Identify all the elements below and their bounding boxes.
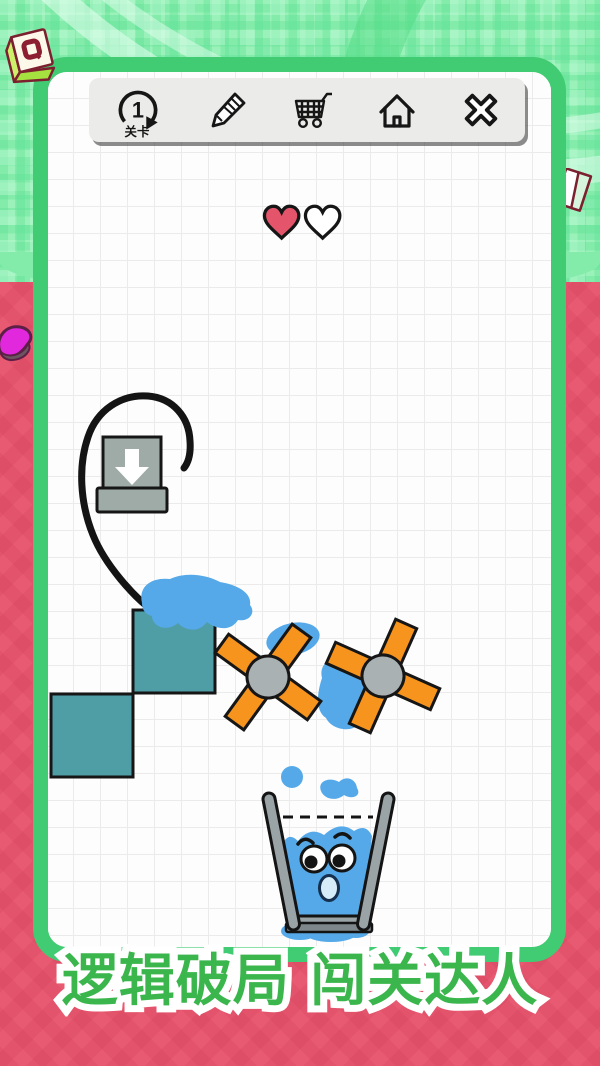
home-icon bbox=[373, 86, 421, 134]
teal-block bbox=[51, 694, 133, 777]
level-number: 1 bbox=[132, 97, 144, 122]
home-button[interactable] bbox=[369, 82, 425, 138]
shop-cart-button[interactable] bbox=[284, 82, 340, 138]
level-restart-button[interactable]: 1 关卡 bbox=[105, 82, 171, 138]
game-scene bbox=[48, 72, 551, 947]
dice-cube-decoration bbox=[2, 22, 68, 90]
banner: 逻辑破局 闯关达人 逻辑破局 闯关达人 bbox=[0, 936, 600, 1026]
water-drop bbox=[281, 766, 303, 788]
game-frame bbox=[33, 57, 566, 962]
level-restart-icon: 1 关卡 bbox=[111, 81, 165, 139]
close-button[interactable] bbox=[453, 82, 509, 138]
mouth bbox=[320, 876, 339, 901]
glass-character bbox=[269, 799, 388, 942]
level-label: 关卡 bbox=[125, 124, 150, 139]
banner-text: 逻辑破局 闯关达人 bbox=[62, 936, 539, 1017]
pencil-button[interactable] bbox=[200, 82, 256, 138]
lives-indicator bbox=[264, 206, 339, 238]
water-dispenser bbox=[97, 437, 167, 512]
shop-cart-icon bbox=[288, 86, 336, 134]
water-splash bbox=[141, 575, 252, 630]
life-heart-empty bbox=[305, 206, 339, 238]
drawing-canvas[interactable] bbox=[48, 72, 551, 947]
close-icon bbox=[458, 87, 504, 133]
water-drop bbox=[320, 778, 358, 798]
life-heart-filled bbox=[264, 206, 298, 238]
toolbar: 1 关卡 bbox=[89, 78, 525, 142]
pencil-icon bbox=[204, 86, 252, 134]
